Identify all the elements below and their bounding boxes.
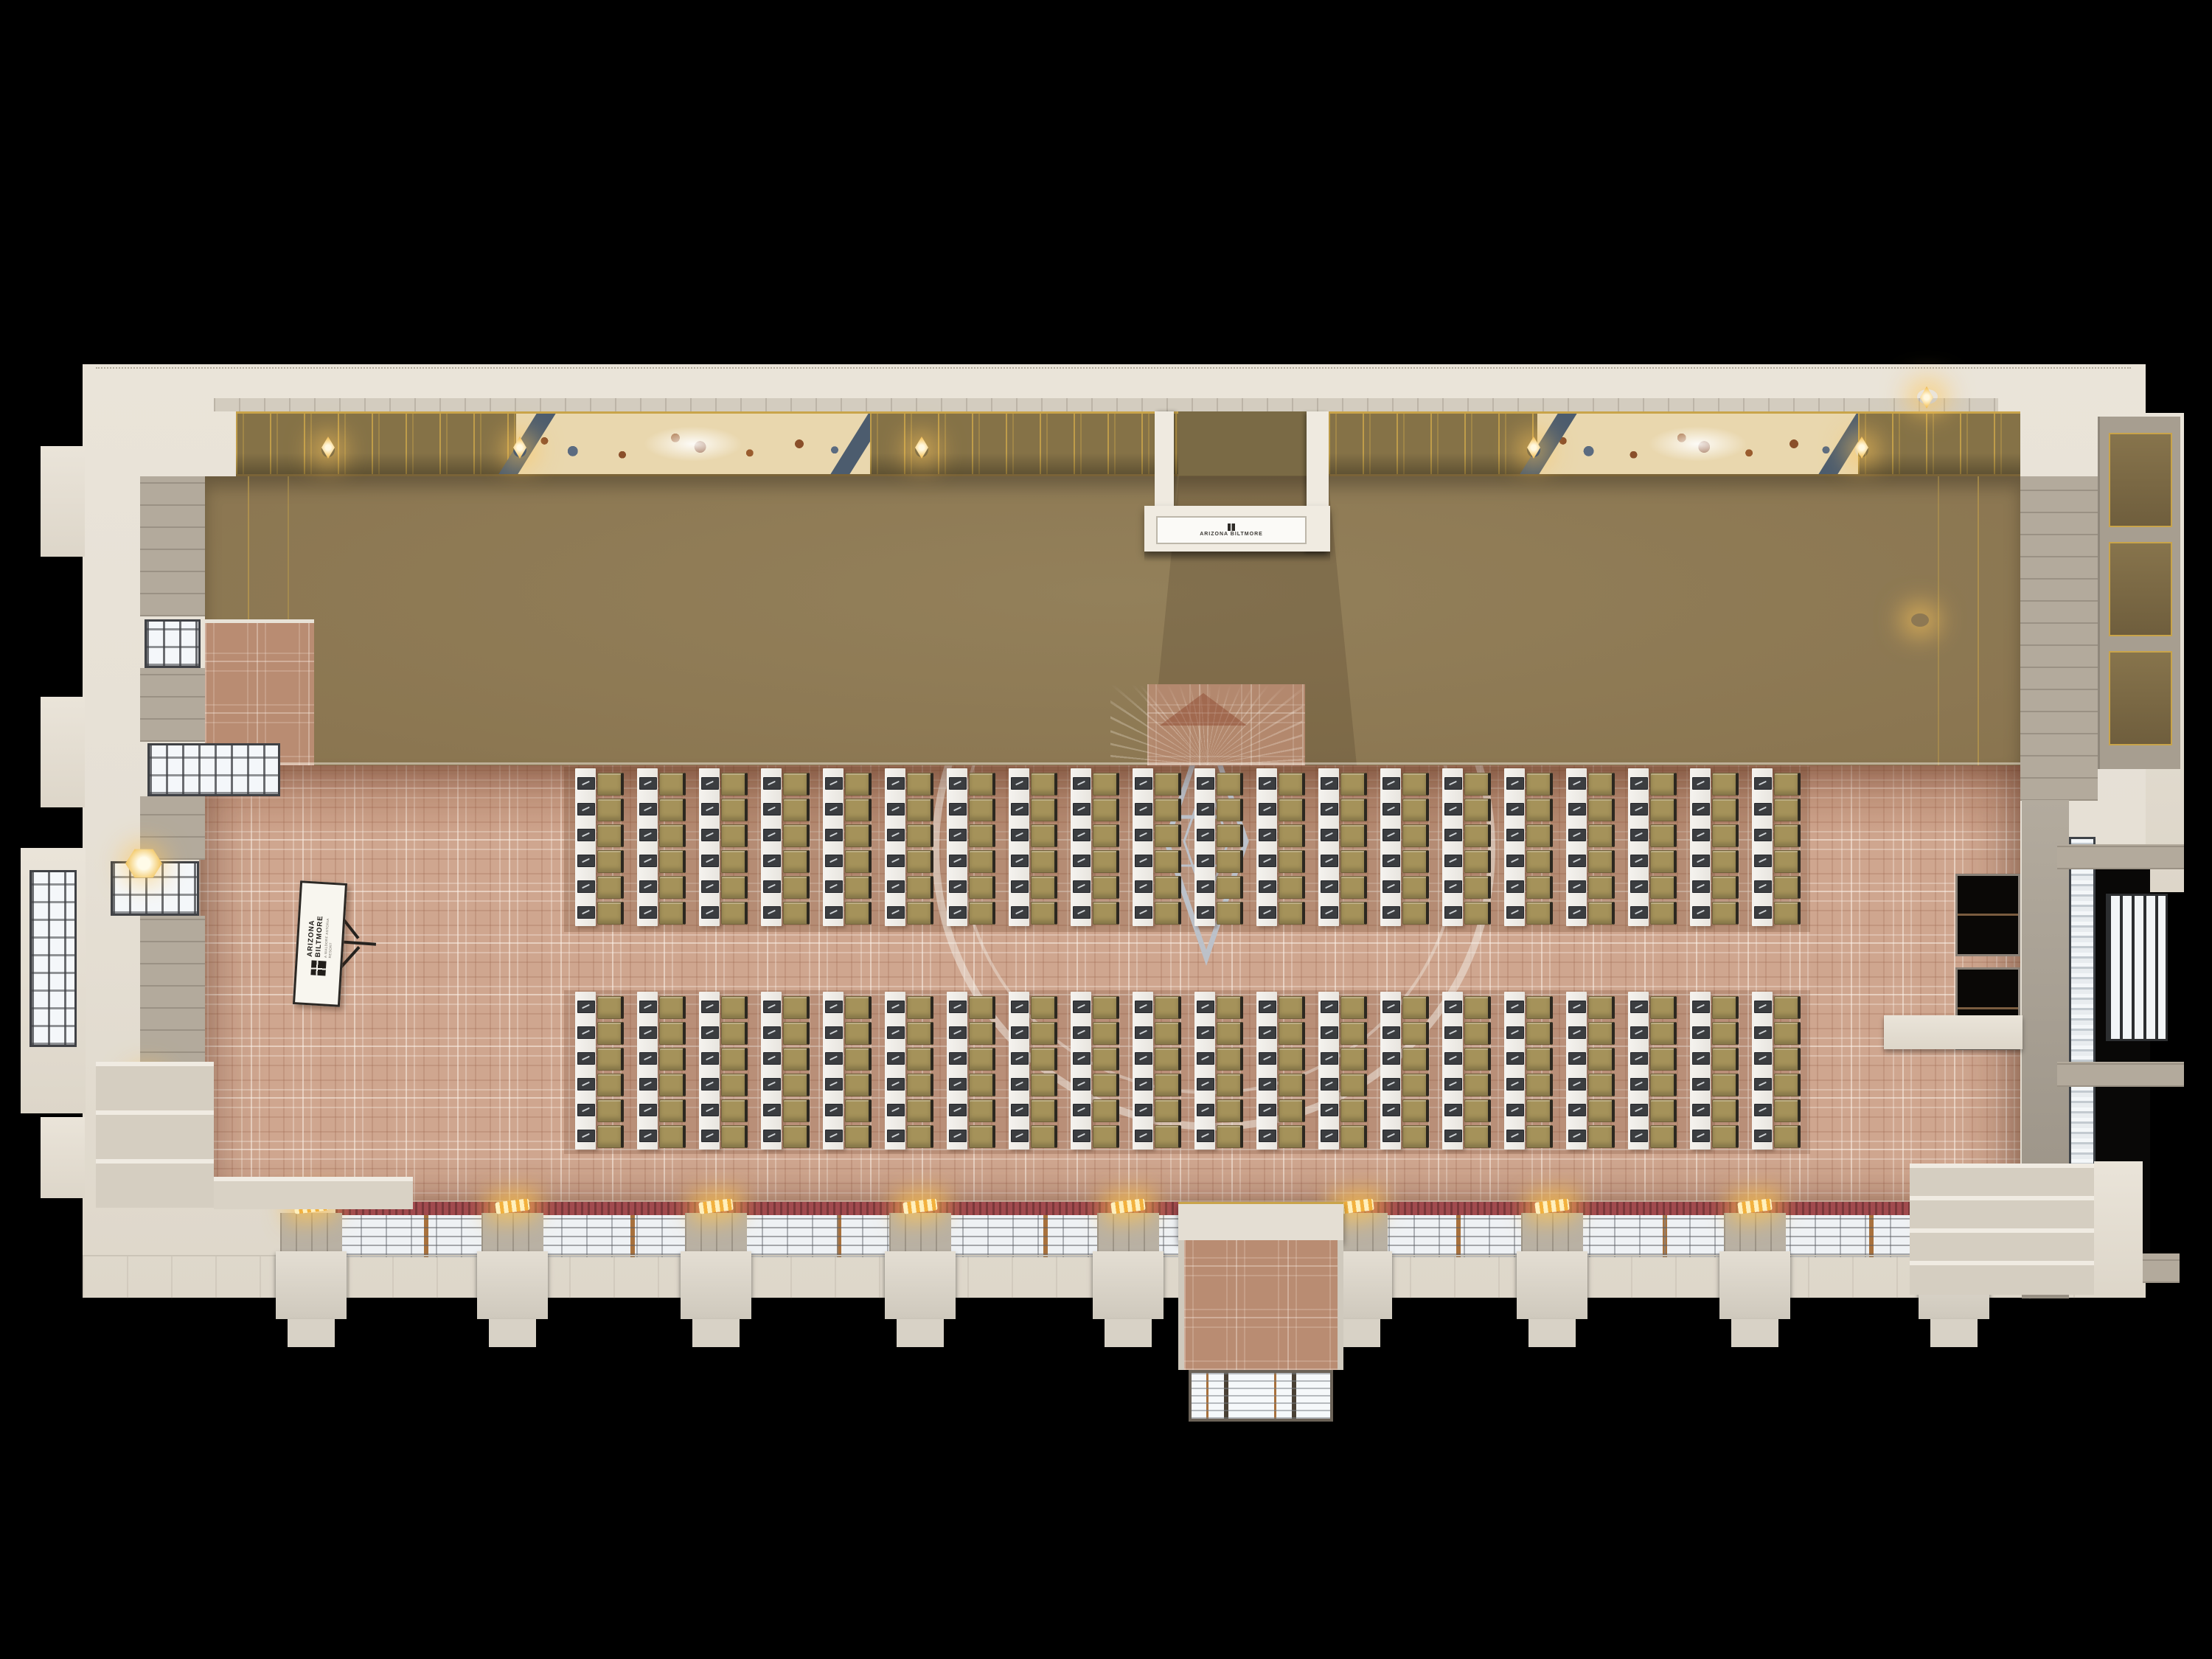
desk-mat bbox=[1692, 1104, 1710, 1116]
desk-column bbox=[1380, 992, 1427, 1150]
desk-mat bbox=[1135, 1001, 1152, 1013]
desk-chair bbox=[1774, 1022, 1801, 1045]
desk-mat bbox=[1321, 1104, 1338, 1116]
southeast-stair-step bbox=[1910, 1164, 2094, 1196]
desk-mat bbox=[701, 1078, 719, 1091]
desk-chair bbox=[845, 773, 872, 796]
desk-chair bbox=[597, 799, 624, 821]
desk-column bbox=[1194, 768, 1242, 926]
desk-chair bbox=[1340, 1099, 1367, 1122]
desk-mat bbox=[1754, 829, 1772, 841]
desk-mat bbox=[1073, 1026, 1091, 1039]
southeast-stair-step bbox=[1910, 1196, 2094, 1228]
desk-mat bbox=[1011, 829, 1029, 841]
desk-mat bbox=[887, 1104, 905, 1116]
desk-chair bbox=[1712, 824, 1739, 847]
desk-table bbox=[1566, 768, 1587, 926]
desk-column bbox=[1009, 768, 1056, 926]
desk-chair bbox=[783, 1125, 810, 1148]
desk-chair bbox=[1217, 824, 1243, 847]
desk-mat bbox=[1135, 880, 1152, 893]
desk-mat bbox=[949, 1130, 967, 1142]
desk-chair bbox=[1526, 1022, 1553, 1045]
desk-chair bbox=[1155, 1125, 1181, 1148]
desk-mat bbox=[763, 906, 781, 919]
desk-mat bbox=[1506, 1078, 1524, 1091]
desk-mat bbox=[1754, 906, 1772, 919]
desk-chair bbox=[1279, 824, 1305, 847]
desk-chair bbox=[1588, 1022, 1615, 1045]
desk-table bbox=[1009, 768, 1029, 926]
desk-mat bbox=[763, 1104, 781, 1116]
desk-mat bbox=[639, 880, 657, 893]
desk-chair bbox=[1464, 824, 1491, 847]
desk-mat bbox=[577, 803, 595, 815]
desk-mat bbox=[1321, 906, 1338, 919]
desk-chair bbox=[1279, 1099, 1305, 1122]
pier-step bbox=[1731, 1319, 1778, 1347]
desk-chair bbox=[721, 902, 748, 925]
pier-inner-face bbox=[1097, 1213, 1159, 1251]
desk-mat bbox=[1692, 880, 1710, 893]
desk-mat bbox=[1754, 1026, 1772, 1039]
desk-chair bbox=[1217, 1125, 1243, 1148]
desk-mat bbox=[1197, 906, 1214, 919]
desk-mat bbox=[1197, 1001, 1214, 1013]
desk-column bbox=[761, 992, 808, 1150]
south-vestibule-skylight bbox=[1189, 1370, 1333, 1422]
pier-body bbox=[681, 1251, 751, 1319]
desk-chair bbox=[1588, 876, 1615, 899]
desk-column bbox=[1752, 768, 1799, 926]
southwest-terrace-ledge bbox=[214, 1177, 413, 1209]
desk-mat bbox=[1630, 906, 1648, 919]
desk-mat bbox=[701, 855, 719, 867]
desk-mat bbox=[1754, 803, 1772, 815]
desk-chair bbox=[1340, 799, 1367, 821]
desk-table bbox=[1194, 992, 1215, 1150]
desk-mat bbox=[1073, 1052, 1091, 1065]
desk-mat bbox=[1754, 1001, 1772, 1013]
desk-chair bbox=[721, 1125, 748, 1148]
desk-mat bbox=[1135, 855, 1152, 867]
west-pier-stack bbox=[140, 668, 205, 742]
desk-mat bbox=[949, 906, 967, 919]
floor-banner-sign: ARIZONA BILTMORE A WALDORF ASTORIA RESOR… bbox=[293, 880, 347, 1007]
desk-mat bbox=[1568, 906, 1586, 919]
desk-mat bbox=[1692, 1052, 1710, 1065]
desk-mat bbox=[701, 1026, 719, 1039]
desk-chair bbox=[1155, 996, 1181, 1019]
desk-mat bbox=[1197, 880, 1214, 893]
southeast-stair-step bbox=[1910, 1261, 2094, 1295]
desk-chair bbox=[1774, 1074, 1801, 1096]
desk-column bbox=[1442, 992, 1489, 1150]
desk-mat bbox=[1692, 1078, 1710, 1091]
desk-chair bbox=[1217, 902, 1243, 925]
desk-chair bbox=[1588, 850, 1615, 873]
desk-table bbox=[1442, 992, 1463, 1150]
northwest-corner-window bbox=[147, 743, 280, 796]
west-buttress bbox=[41, 446, 85, 557]
desk-mat bbox=[763, 1001, 781, 1013]
desk-mat bbox=[825, 880, 843, 893]
desk-mat bbox=[701, 1001, 719, 1013]
desk-mat bbox=[825, 855, 843, 867]
desk-chair bbox=[1402, 1048, 1429, 1071]
desk-mat bbox=[825, 1130, 843, 1142]
desk-chair bbox=[1650, 850, 1677, 873]
desk-chair bbox=[1464, 876, 1491, 899]
desk-chair bbox=[597, 1074, 624, 1096]
desk-table bbox=[637, 768, 658, 926]
desk-chair bbox=[1031, 1022, 1057, 1045]
desk-table bbox=[1628, 992, 1649, 1150]
desk-column bbox=[885, 992, 932, 1150]
south-pier bbox=[276, 1213, 347, 1353]
desk-chair bbox=[659, 824, 686, 847]
desk-table bbox=[575, 768, 596, 926]
desk-mat bbox=[1321, 1001, 1338, 1013]
desk-mat bbox=[1011, 1001, 1029, 1013]
desk-mat bbox=[1197, 803, 1214, 815]
desk-mat bbox=[887, 829, 905, 841]
west-bay-window bbox=[29, 870, 77, 1047]
desk-mat bbox=[1568, 777, 1586, 790]
desk-mat bbox=[1506, 1001, 1524, 1013]
desk-column bbox=[637, 992, 684, 1150]
desk-chair bbox=[1588, 902, 1615, 925]
desk-mat bbox=[1506, 855, 1524, 867]
desk-chair bbox=[1093, 1022, 1119, 1045]
desk-chair bbox=[1464, 773, 1491, 796]
desk-chair bbox=[1402, 1022, 1429, 1045]
desk-chair bbox=[783, 1099, 810, 1122]
desk-mat bbox=[1135, 829, 1152, 841]
desk-mat bbox=[1197, 1078, 1214, 1091]
desk-mat bbox=[1444, 1130, 1462, 1142]
desk-table bbox=[1071, 992, 1091, 1150]
desk-chair bbox=[1031, 1048, 1057, 1071]
desk-chair bbox=[1093, 996, 1119, 1019]
desk-mat bbox=[1568, 829, 1586, 841]
desk-chair bbox=[1650, 773, 1677, 796]
southwest-terrace-step bbox=[96, 1062, 214, 1110]
desk-table bbox=[947, 992, 967, 1150]
desk-chair bbox=[1031, 1074, 1057, 1096]
desk-chair bbox=[969, 1125, 995, 1148]
desk-chair bbox=[1155, 1048, 1181, 1071]
desk-column bbox=[1133, 768, 1180, 926]
desk-table bbox=[823, 992, 844, 1150]
desk-chair bbox=[1526, 1099, 1553, 1122]
pier-body bbox=[477, 1251, 548, 1319]
desk-chair bbox=[1712, 1074, 1739, 1096]
desk-chair bbox=[1526, 1048, 1553, 1071]
desk-chair bbox=[1279, 1022, 1305, 1045]
east-gold-framed-panel bbox=[2109, 542, 2172, 636]
desk-mat bbox=[1011, 1026, 1029, 1039]
desk-chair bbox=[1712, 1099, 1739, 1122]
desk-mat bbox=[1692, 1001, 1710, 1013]
pier-step bbox=[897, 1319, 944, 1347]
desk-chair bbox=[1031, 996, 1057, 1019]
desk-chair bbox=[1155, 1022, 1181, 1045]
desk-chair bbox=[1093, 773, 1119, 796]
desk-chair bbox=[907, 996, 933, 1019]
desk-column bbox=[1318, 992, 1366, 1150]
desk-mat bbox=[763, 829, 781, 841]
desk-table bbox=[1504, 768, 1525, 926]
desk-chair bbox=[1279, 799, 1305, 821]
desk-chair bbox=[1650, 1099, 1677, 1122]
desk-mat bbox=[577, 880, 595, 893]
desk-chair bbox=[845, 996, 872, 1019]
desk-mat bbox=[1382, 1078, 1400, 1091]
desk-mat bbox=[639, 1078, 657, 1091]
desk-mat bbox=[1259, 880, 1276, 893]
desk-mat bbox=[825, 803, 843, 815]
desk-chair bbox=[907, 1074, 933, 1096]
desk-mat bbox=[577, 1104, 595, 1116]
desk-mat bbox=[1135, 777, 1152, 790]
desk-chair bbox=[907, 876, 933, 899]
east-sconce-glow bbox=[1911, 613, 1929, 627]
desk-chair bbox=[721, 824, 748, 847]
ceiling-coffer-panel bbox=[1329, 411, 1537, 476]
desk-mat bbox=[1321, 855, 1338, 867]
desk-column bbox=[1690, 992, 1737, 1150]
desk-column bbox=[1442, 768, 1489, 926]
desk-chair bbox=[1588, 1099, 1615, 1122]
desk-column bbox=[1071, 992, 1118, 1150]
desk-chair bbox=[1464, 1099, 1491, 1122]
desk-mat bbox=[1073, 803, 1091, 815]
south-pier bbox=[477, 1213, 548, 1353]
desk-mat bbox=[1630, 803, 1648, 815]
desk-column bbox=[1009, 992, 1056, 1150]
desk-chair bbox=[1031, 824, 1057, 847]
desk-mat bbox=[701, 906, 719, 919]
desk-mat bbox=[1630, 1026, 1648, 1039]
desk-chair bbox=[1464, 1048, 1491, 1071]
desk-chair bbox=[969, 824, 995, 847]
desk-chair bbox=[1650, 902, 1677, 925]
desk-mat bbox=[1630, 777, 1648, 790]
desk-column bbox=[1318, 768, 1366, 926]
desk-chair bbox=[1093, 824, 1119, 847]
desk-column bbox=[699, 992, 746, 1150]
desk-mat bbox=[639, 1130, 657, 1142]
desk-mat bbox=[763, 1052, 781, 1065]
desk-chair bbox=[721, 1048, 748, 1071]
east-floor-ledge bbox=[1884, 1015, 2023, 1049]
desk-mat bbox=[1259, 1104, 1276, 1116]
desk-column bbox=[575, 992, 622, 1150]
desk-chair bbox=[1526, 1125, 1553, 1148]
desk-chair bbox=[1402, 1074, 1429, 1096]
desk-chair bbox=[1402, 850, 1429, 873]
desk-chair bbox=[721, 1099, 748, 1122]
desk-mat bbox=[577, 1052, 595, 1065]
desk-chair bbox=[721, 1074, 748, 1096]
desk-chair bbox=[1464, 1074, 1491, 1096]
desk-mat bbox=[949, 880, 967, 893]
desk-chair bbox=[1774, 799, 1801, 821]
desk-mat bbox=[1382, 1026, 1400, 1039]
desk-chair bbox=[1155, 1099, 1181, 1122]
desk-chair bbox=[1155, 1074, 1181, 1096]
desk-table bbox=[1194, 768, 1215, 926]
desk-mat bbox=[1506, 803, 1524, 815]
desk-chair bbox=[1650, 1048, 1677, 1071]
desk-chair bbox=[1279, 1125, 1305, 1148]
desk-mat bbox=[949, 803, 967, 815]
desk-chair bbox=[1093, 1099, 1119, 1122]
desk-chair bbox=[659, 876, 686, 899]
south-vestibule-roof-ledge bbox=[1178, 1202, 1343, 1242]
east-barred-window bbox=[2106, 894, 2168, 1041]
desk-chair bbox=[597, 876, 624, 899]
desk-chair bbox=[783, 1048, 810, 1071]
desk-mat bbox=[639, 855, 657, 867]
desk-mat bbox=[1692, 803, 1710, 815]
canopy-shadow bbox=[1144, 552, 1330, 562]
alcove-shelf bbox=[1958, 914, 2018, 916]
biltmore-sprite-logo-icon bbox=[1228, 524, 1235, 531]
desk-table bbox=[1318, 992, 1339, 1150]
desk-chair bbox=[1402, 1125, 1429, 1148]
desk-mat bbox=[949, 1052, 967, 1065]
desk-chair bbox=[845, 1048, 872, 1071]
desk-mat bbox=[825, 777, 843, 790]
south-pier bbox=[1517, 1213, 1587, 1353]
desk-chair bbox=[1402, 773, 1429, 796]
desk-chair bbox=[721, 996, 748, 1019]
desk-table bbox=[1133, 768, 1153, 926]
desk-chair bbox=[1031, 799, 1057, 821]
desk-chair bbox=[1774, 850, 1801, 873]
desk-mat bbox=[1259, 1001, 1276, 1013]
desk-mat bbox=[577, 1001, 595, 1013]
desk-chair bbox=[721, 773, 748, 796]
desk-mat bbox=[1135, 1052, 1152, 1065]
desk-chair bbox=[1526, 850, 1553, 873]
desk-table bbox=[1628, 768, 1649, 926]
desk-mat bbox=[1382, 803, 1400, 815]
desk-chair bbox=[969, 996, 995, 1019]
desk-mat bbox=[1259, 1130, 1276, 1142]
desk-chair bbox=[1650, 1022, 1677, 1045]
desk-chair bbox=[721, 1022, 748, 1045]
desk-chair bbox=[1464, 850, 1491, 873]
desk-chair bbox=[597, 1099, 624, 1122]
desk-mat bbox=[887, 1078, 905, 1091]
desk-mat bbox=[1630, 1001, 1648, 1013]
desk-mat bbox=[639, 803, 657, 815]
desk-chair bbox=[1155, 850, 1181, 873]
desk-mat bbox=[701, 1130, 719, 1142]
desk-chair bbox=[1712, 1022, 1739, 1045]
east-gold-framed-panel bbox=[2109, 651, 2172, 745]
desk-mat bbox=[949, 1078, 967, 1091]
pier-body bbox=[1719, 1251, 1790, 1319]
desk-chair bbox=[845, 1074, 872, 1096]
desk-chair bbox=[597, 1125, 624, 1148]
desk-chair bbox=[845, 876, 872, 899]
desk-mat bbox=[1444, 880, 1462, 893]
desk-chair bbox=[845, 824, 872, 847]
desk-mat bbox=[577, 1026, 595, 1039]
desk-mat bbox=[577, 829, 595, 841]
desk-mat bbox=[1630, 855, 1648, 867]
desk-chair bbox=[845, 850, 872, 873]
desk-mat bbox=[1444, 777, 1462, 790]
desk-mat bbox=[1197, 1104, 1214, 1116]
desk-mat bbox=[1568, 1026, 1586, 1039]
desk-mat bbox=[825, 1026, 843, 1039]
desk-mat bbox=[1321, 880, 1338, 893]
ceiling-coffer-panel bbox=[236, 411, 516, 476]
desk-mat bbox=[887, 777, 905, 790]
desk-chair bbox=[1402, 876, 1429, 899]
desk-table bbox=[885, 992, 905, 1150]
desk-mat bbox=[1321, 829, 1338, 841]
desk-mat bbox=[949, 855, 967, 867]
desk-chair bbox=[597, 1048, 624, 1071]
desk-mat bbox=[1630, 829, 1648, 841]
desk-mat bbox=[1568, 1052, 1586, 1065]
wall-gold-trim-line bbox=[1978, 476, 1979, 765]
east-gold-panel-wall bbox=[2098, 417, 2180, 769]
desk-mat bbox=[1444, 829, 1462, 841]
desk-mat bbox=[1135, 803, 1152, 815]
desk-mat bbox=[1073, 1130, 1091, 1142]
desk-mat bbox=[1506, 777, 1524, 790]
north-mural-strip bbox=[236, 411, 2020, 476]
desk-chair bbox=[1031, 876, 1057, 899]
desk-chair bbox=[1155, 773, 1181, 796]
pier-step bbox=[1528, 1319, 1576, 1347]
desk-chair bbox=[1774, 1125, 1801, 1148]
desk-mat bbox=[887, 906, 905, 919]
desk-chair bbox=[907, 1022, 933, 1045]
desk-mat bbox=[1444, 906, 1462, 919]
desk-column bbox=[947, 768, 994, 926]
desk-chair bbox=[1279, 876, 1305, 899]
desk-chair bbox=[1217, 1022, 1243, 1045]
desk-table bbox=[1380, 768, 1401, 926]
desk-chair bbox=[1217, 850, 1243, 873]
desk-mat bbox=[701, 1052, 719, 1065]
desk-mat bbox=[1321, 1026, 1338, 1039]
banner-brand-text: ARIZONA BILTMORE bbox=[306, 911, 325, 957]
canopy-sign-plate: ARIZONA BILTMORE bbox=[1156, 516, 1307, 544]
desk-chair bbox=[1526, 824, 1553, 847]
desk-mat bbox=[1011, 803, 1029, 815]
desk-chair bbox=[1340, 902, 1367, 925]
desk-chair bbox=[969, 1074, 995, 1096]
desk-chair bbox=[1464, 996, 1491, 1019]
desk-mat bbox=[1382, 880, 1400, 893]
desk-chair bbox=[1588, 1074, 1615, 1096]
desk-mat bbox=[887, 1001, 905, 1013]
pier-step bbox=[1930, 1319, 1978, 1347]
desk-chair bbox=[1093, 1048, 1119, 1071]
desk-column bbox=[575, 768, 622, 926]
desk-chair bbox=[1588, 1125, 1615, 1148]
desk-mat bbox=[1630, 1104, 1648, 1116]
